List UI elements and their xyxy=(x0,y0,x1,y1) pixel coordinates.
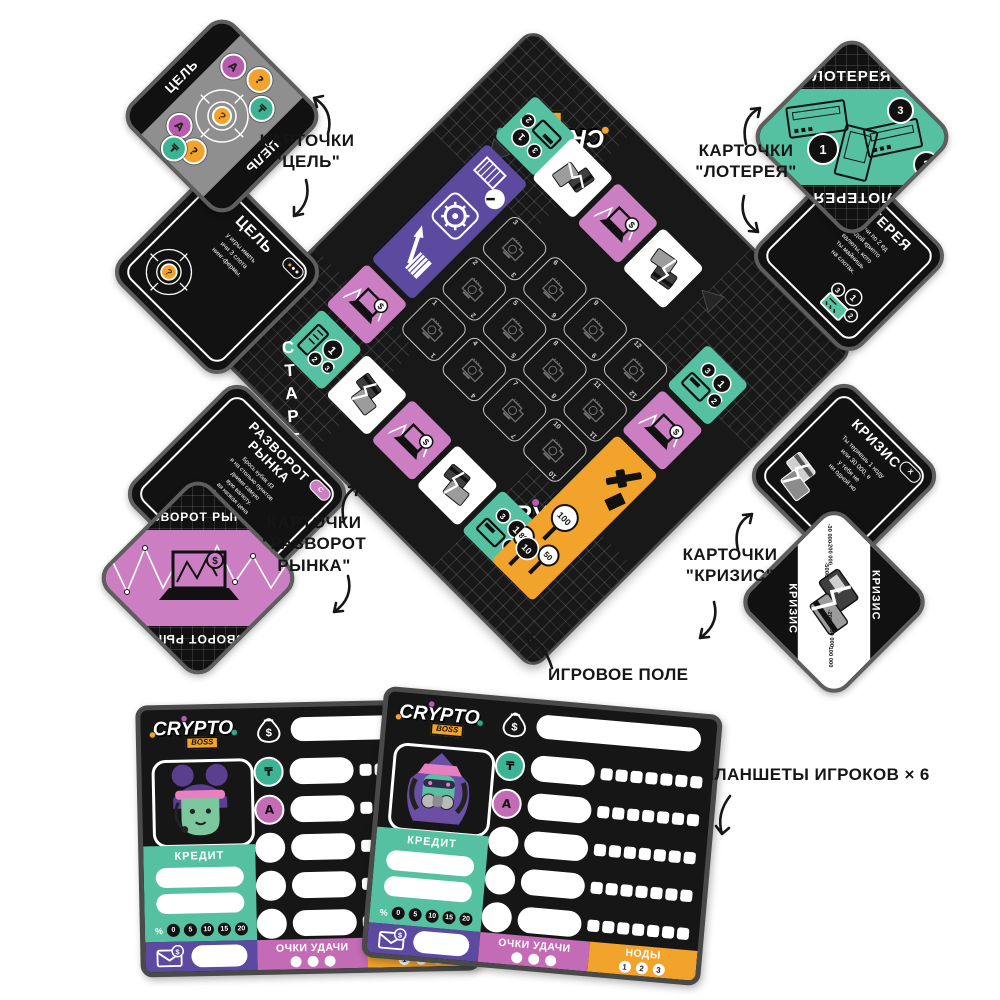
mail-field xyxy=(191,944,247,967)
progress-squares xyxy=(593,844,696,865)
credit-panel: КРЕДИТ % 0 5 10 15 20 xyxy=(369,827,489,932)
luck-title: ОЧКИ УДАЧИ xyxy=(498,936,571,954)
mail-field xyxy=(412,930,470,957)
svg-text:$: $ xyxy=(511,721,519,734)
progress-square xyxy=(615,769,628,782)
percent-chip: 15 xyxy=(442,911,456,925)
slot-number: 4 xyxy=(470,391,478,399)
progress-square xyxy=(665,888,678,901)
progress-square xyxy=(600,768,613,781)
percent-chip: 5 xyxy=(408,908,422,922)
crypto-boss-logo: CRYPTO BOSS xyxy=(152,717,234,753)
percent-sign: % xyxy=(155,926,163,936)
progress-squares xyxy=(590,881,693,902)
progress-square xyxy=(645,772,658,785)
luck-dot xyxy=(510,951,522,963)
avatar-girl-headset xyxy=(154,761,246,839)
progress-square xyxy=(602,921,615,934)
arrow-to-market-back xyxy=(322,572,356,616)
percent-chip: 10 xyxy=(201,923,214,936)
crypto-boss-logo: CRYPTO BOSS xyxy=(397,700,481,741)
blank-coin xyxy=(480,901,513,934)
arrow-to-lottery-back xyxy=(738,102,772,146)
luck-dot xyxy=(527,953,539,965)
player-avatar xyxy=(151,758,255,848)
arrow-to-board xyxy=(516,628,556,672)
slot-number: 8 xyxy=(551,340,559,348)
lottery-ball: 1 xyxy=(807,133,839,165)
broken-card-icon xyxy=(636,242,690,296)
progress-square xyxy=(587,919,600,932)
progress-square xyxy=(359,764,371,776)
gpu-icon xyxy=(416,311,453,348)
percent-chip: 15 xyxy=(218,923,231,936)
slot-number: 7 xyxy=(510,432,518,440)
slot-number: 9 xyxy=(592,300,600,308)
progress-square xyxy=(662,926,675,939)
node-ball: 3 xyxy=(652,963,665,976)
luck-dot xyxy=(324,955,335,966)
progress-square xyxy=(612,807,625,820)
currency-field xyxy=(530,755,596,786)
progress-square xyxy=(590,881,603,894)
credit-field xyxy=(385,850,474,878)
luck-dots xyxy=(290,955,335,967)
percent-chip: 20 xyxy=(459,912,473,926)
currency-row xyxy=(487,826,697,872)
market-icon: $ xyxy=(587,192,649,254)
luck-dot xyxy=(307,955,318,966)
a-coin: А xyxy=(254,794,285,825)
progress-squares xyxy=(597,806,700,827)
percent-chip: 0 xyxy=(167,924,180,937)
currency-field xyxy=(289,757,354,784)
gpu-icon xyxy=(537,271,574,308)
currency-field xyxy=(292,871,357,898)
annotation-lottery-cards: КАРТОЧКИ "ЛОТЕРЕЯ" xyxy=(694,140,798,183)
crypto-boss-components-sheet: CRYPTO BOSS CRYPTO BOSS 1 2 xyxy=(0,0,1000,1000)
crisis-value: -30 000 xyxy=(826,523,832,543)
percent-chip: 20 xyxy=(235,922,248,935)
gpu-icon xyxy=(456,351,493,388)
slot-number: 12 xyxy=(632,340,642,350)
percent-sign: % xyxy=(379,907,388,918)
slot-number: 9 xyxy=(591,351,599,359)
avatar-masked-hacker xyxy=(391,745,487,829)
progress-square xyxy=(680,889,693,902)
envelope-icon: $ xyxy=(155,945,185,970)
progress-square xyxy=(627,808,640,821)
annotation-player-boards: ПЛАНШЕТЫ ИГРОКОВ × 6 xyxy=(702,764,932,785)
progress-square xyxy=(657,811,670,824)
currency-field xyxy=(293,909,358,936)
arrow-to-crisis-back xyxy=(688,598,722,642)
logo-dot-orange xyxy=(601,126,610,135)
percent-row: % 0 5 10 15 20 xyxy=(155,922,248,937)
credit-title: КРЕДИТ xyxy=(143,849,255,863)
luck-dot xyxy=(544,954,556,966)
currency-field xyxy=(520,868,586,899)
arrow-to-player-boards xyxy=(708,792,742,840)
envelope-icon: $ xyxy=(376,926,408,953)
progress-square xyxy=(650,887,663,900)
slot-number: 3 xyxy=(511,219,519,227)
percent-chip: 10 xyxy=(425,909,439,923)
gpu-icon xyxy=(577,311,614,348)
svg-text:$: $ xyxy=(266,727,273,739)
gpu-icon xyxy=(577,391,614,428)
progress-square xyxy=(630,771,643,784)
lottery-ball: 2 xyxy=(913,151,940,178)
currency-field xyxy=(290,795,355,822)
lottery-ticket xyxy=(862,118,923,159)
progress-square xyxy=(672,812,685,825)
progress-square xyxy=(623,846,636,859)
blank-coin xyxy=(255,832,286,863)
progress-square xyxy=(632,923,645,936)
lottery-card-back: ЛОТЕРЕЯ 1 3 2 ЛОТЕРЕЯ xyxy=(747,32,956,241)
slot-number: 11 xyxy=(592,380,602,390)
progress-square xyxy=(593,844,606,857)
slot-number: 8 xyxy=(551,391,559,399)
credit-field xyxy=(383,875,472,903)
nodes-title: НОДЫ xyxy=(625,947,661,962)
annotation-goal-cards: КАРТОЧКИ "ЦЕЛЬ" xyxy=(252,130,362,173)
slot-number: 5 xyxy=(510,351,518,359)
progress-square xyxy=(647,925,660,938)
credit-field xyxy=(156,866,244,888)
market-band: РАЗВОРОТ РЫНКА xyxy=(93,626,302,652)
luck-dot xyxy=(290,956,301,967)
crisis-value: -5000 xyxy=(823,562,829,577)
arrow-to-goal-front xyxy=(278,176,312,220)
lottery-ball: 3 xyxy=(887,97,914,124)
progress-square xyxy=(635,885,648,898)
node-balls: 1 2 3 xyxy=(618,960,665,976)
progress-square xyxy=(677,927,690,940)
slot-number: 4 xyxy=(471,340,479,348)
crisis-value: -100 000 xyxy=(827,645,833,668)
slot-number: 6 xyxy=(551,259,559,267)
money-bag-icon: $ xyxy=(254,715,283,746)
progress-square xyxy=(683,851,696,864)
currency-row xyxy=(484,864,694,910)
slot-number: 2 xyxy=(471,259,479,267)
slot-number: 3 xyxy=(510,271,518,279)
progress-square xyxy=(360,802,372,814)
progress-square xyxy=(660,773,673,786)
progress-squares xyxy=(587,919,690,940)
annotation-game-field: ИГРОВОЕ ПОЛЕ xyxy=(548,664,708,685)
progress-square xyxy=(617,922,630,935)
gpu-icon xyxy=(537,432,574,469)
currency-field xyxy=(523,831,589,862)
credit-field xyxy=(156,892,244,914)
crisis-value: -200 xyxy=(826,609,832,621)
progress-square xyxy=(597,806,610,819)
tenge-coin: ₸ xyxy=(253,756,284,787)
market-icon: $ xyxy=(631,399,693,461)
progress-square xyxy=(653,849,666,862)
gpu-icon xyxy=(496,311,533,348)
slot-number: 10 xyxy=(548,469,558,479)
slot-number: 1 xyxy=(430,351,438,359)
market-icon: $ xyxy=(381,409,443,471)
gpu-icon xyxy=(496,230,533,267)
percent-row: % 0 5 10 15 20 xyxy=(379,905,473,926)
svg-text:$: $ xyxy=(175,947,180,956)
progress-square xyxy=(675,774,688,787)
player-board-2: CRYPTO BOSS $ ₸ xyxy=(361,686,723,987)
node-ball: 1 xyxy=(618,960,631,973)
progress-square xyxy=(686,814,699,827)
blank-coin xyxy=(487,825,520,858)
blank-coin xyxy=(256,908,287,939)
percent-chip: 5 xyxy=(184,923,197,936)
progress-square xyxy=(690,776,703,789)
slot-number: 2 xyxy=(470,311,478,319)
currency-field xyxy=(517,906,583,937)
a-coin: А xyxy=(490,788,523,821)
broken-card-icon xyxy=(430,459,484,513)
progress-square xyxy=(638,848,651,861)
node-ball: 2 xyxy=(635,962,648,975)
progress-squares xyxy=(600,768,703,789)
money-bag-icon: $ xyxy=(499,708,530,740)
mail-panel: $ xyxy=(145,940,258,972)
slot-number: 12 xyxy=(629,389,639,399)
slot-number: 10 xyxy=(551,420,561,430)
card-back-layout: ЛОТЕРЕЯ 1 3 2 ЛОТЕРЕЯ xyxy=(747,32,956,241)
broken-card-icon xyxy=(340,368,394,422)
slot-number: 11 xyxy=(589,429,599,439)
progress-square xyxy=(605,883,618,896)
player-avatar xyxy=(387,742,496,839)
lottery-band: ЛОТЕРЕЯ xyxy=(747,63,956,89)
gpu-icon xyxy=(456,271,493,308)
svg-text:$: $ xyxy=(398,931,403,940)
currency-row-a: А xyxy=(491,789,701,835)
slot-number: 6 xyxy=(551,311,559,319)
slot-number: 1 xyxy=(430,300,438,308)
arrow-to-crisis-front xyxy=(730,508,764,552)
luck-panel: ОЧКИ УДАЧИ xyxy=(257,938,368,970)
lottery-band: ЛОТЕРЕЯ xyxy=(747,185,956,211)
arrow-to-lottery-front xyxy=(736,192,770,236)
gpu-icon xyxy=(496,391,533,428)
logo-dot-purple xyxy=(531,498,540,507)
gpu-icon xyxy=(537,351,574,388)
luck-dots xyxy=(510,951,556,966)
currency-field xyxy=(526,793,592,824)
tenge-coin: ₸ xyxy=(494,750,527,783)
luck-title: ОЧКИ УДАЧИ xyxy=(276,941,349,955)
progress-square xyxy=(668,850,681,863)
slot-number: 7 xyxy=(511,380,519,388)
arrow-to-goal-back xyxy=(300,92,334,136)
percent-chip: 0 xyxy=(391,906,405,920)
credit-panel: КРЕДИТ % 0 5 10 15 20 xyxy=(143,844,257,942)
slot-number: 5 xyxy=(511,300,519,308)
blank-coin xyxy=(484,863,517,896)
currency-field xyxy=(291,833,356,860)
progress-square xyxy=(642,810,655,823)
svg-text:$: $ xyxy=(212,556,218,567)
crisis-card-back: КРИЗИС КРИЗИС -30 000 -200 000 -5000 -20… xyxy=(735,503,933,701)
gpu-icon xyxy=(617,351,654,388)
progress-square xyxy=(608,845,621,858)
arrow-to-market-front xyxy=(336,480,370,524)
broken-card-icon xyxy=(546,151,600,205)
blank-coin xyxy=(256,870,287,901)
progress-square xyxy=(620,884,633,897)
